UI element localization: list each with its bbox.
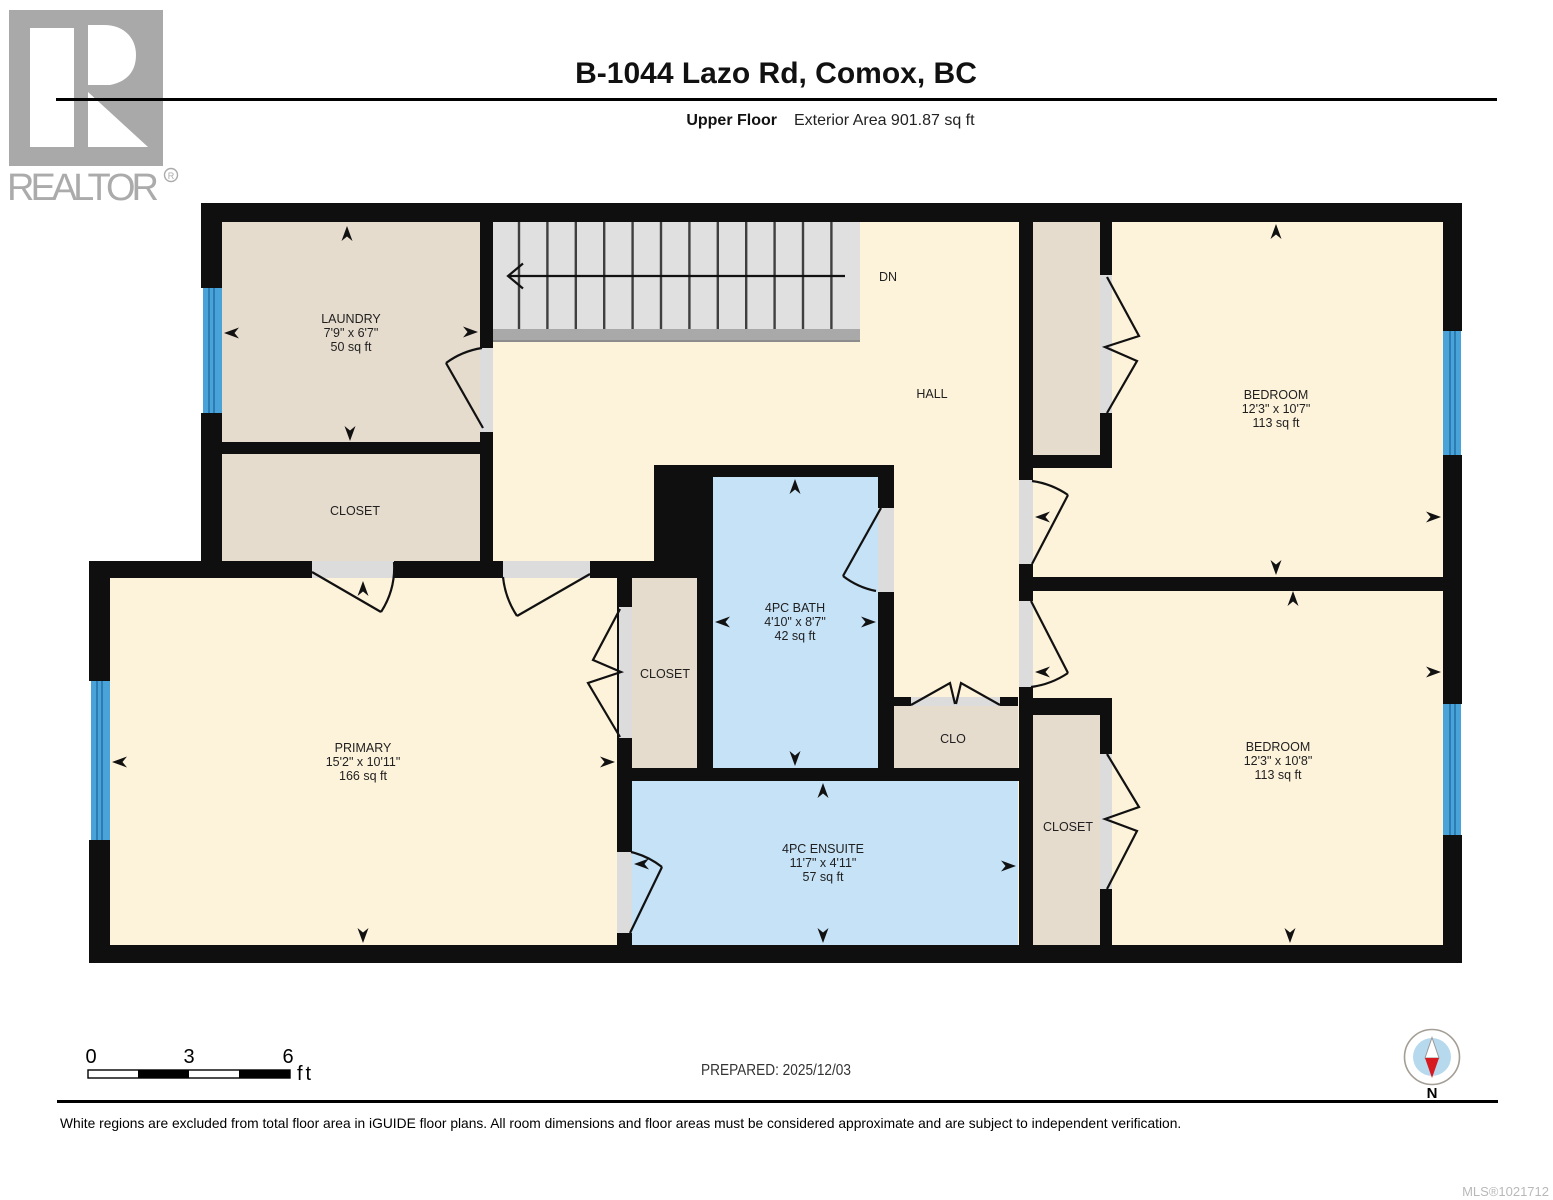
- svg-text:LAUNDRY: LAUNDRY: [321, 312, 381, 326]
- svg-text:DN: DN: [879, 270, 897, 284]
- svg-text:BEDROOM: BEDROOM: [1244, 388, 1309, 402]
- svg-text:4PC ENSUITE: 4PC ENSUITE: [782, 842, 864, 856]
- svg-text:White regions are excluded fro: White regions are excluded from total fl…: [60, 1116, 1181, 1131]
- svg-text:4PC BATH: 4PC BATH: [765, 601, 825, 615]
- svg-text:PREPARED: 2025/12/03: PREPARED: 2025/12/03: [701, 1062, 851, 1079]
- svg-text:ft: ft: [297, 1063, 311, 1085]
- svg-text:Upper Floor: Upper Floor: [686, 112, 777, 129]
- svg-text:CLOSET: CLOSET: [1043, 820, 1093, 834]
- svg-text:57 sq ft: 57 sq ft: [803, 870, 845, 884]
- svg-text:R: R: [168, 171, 175, 181]
- svg-text:Exterior Area 901.87 sq ft: Exterior Area 901.87 sq ft: [794, 112, 975, 129]
- svg-text:N: N: [1427, 1085, 1438, 1102]
- svg-text:12'3" x 10'8": 12'3" x 10'8": [1244, 754, 1313, 768]
- svg-text:11'7" x 4'11": 11'7" x 4'11": [790, 856, 857, 870]
- svg-text:CLO: CLO: [940, 732, 966, 746]
- svg-text:B-1044 Lazo Rd, Comox, BC: B-1044 Lazo Rd, Comox, BC: [575, 57, 977, 90]
- svg-text:113 sq ft: 113 sq ft: [1252, 416, 1300, 430]
- svg-text:166 sq ft: 166 sq ft: [339, 769, 387, 783]
- svg-text:4'10" x 8'7": 4'10" x 8'7": [764, 615, 826, 629]
- svg-text:12'3" x 10'7": 12'3" x 10'7": [1242, 402, 1311, 416]
- svg-text:113 sq ft: 113 sq ft: [1254, 768, 1302, 782]
- svg-text:CLOSET: CLOSET: [330, 504, 380, 518]
- svg-text:6: 6: [282, 1046, 293, 1068]
- svg-text:MLS®1021712: MLS®1021712: [1462, 1184, 1549, 1199]
- svg-text:REALTOR: REALTOR: [7, 167, 159, 209]
- svg-text:HALL: HALL: [916, 387, 947, 401]
- svg-text:0: 0: [85, 1046, 96, 1068]
- svg-text:CLOSET: CLOSET: [640, 667, 690, 681]
- svg-text:15'2" x 10'11": 15'2" x 10'11": [326, 755, 401, 769]
- svg-text:BEDROOM: BEDROOM: [1246, 740, 1311, 754]
- svg-text:50 sq ft: 50 sq ft: [331, 340, 373, 354]
- svg-text:3: 3: [183, 1046, 194, 1068]
- svg-text:42 sq ft: 42 sq ft: [775, 629, 817, 643]
- svg-text:7'9" x 6'7": 7'9" x 6'7": [324, 326, 379, 340]
- svg-text:PRIMARY: PRIMARY: [335, 741, 392, 755]
